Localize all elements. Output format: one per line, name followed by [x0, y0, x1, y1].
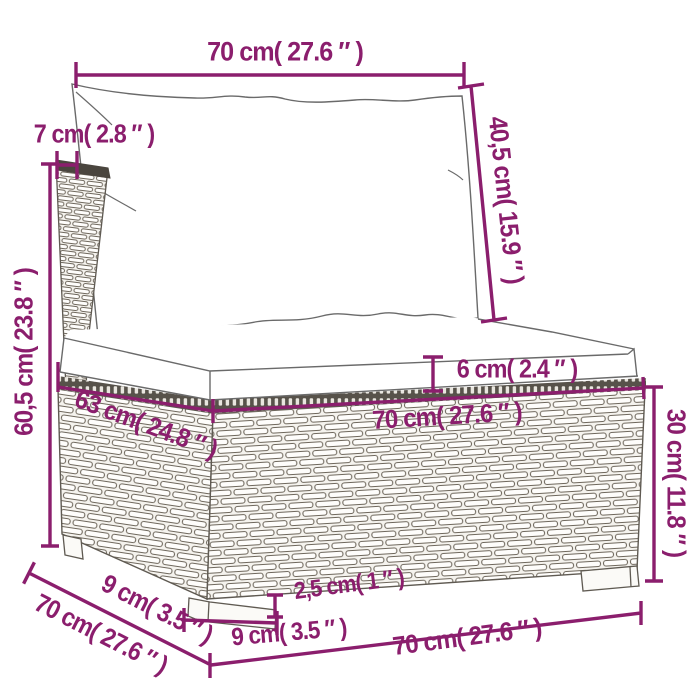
foot-left	[63, 535, 83, 559]
label-seat-cushion-thickness: 6 cm( 2.4 ″ )	[457, 354, 577, 385]
label-top-width: 70 cm( 27.6 ″ )	[207, 37, 363, 68]
label-base-height: 30 cm( 11.8 ″ )	[661, 409, 692, 557]
label-back-height: 60,5 cm( 23.8 ″ )	[9, 268, 40, 436]
label-back-thickness: 7 cm( 2.8 ″ )	[34, 119, 154, 150]
product-dimension-diagram: 70 cm( 27.6 ″ ) 7 cm( 2.8 ″ ) 60,5 cm( 2…	[0, 0, 700, 700]
dim-line-back-height	[41, 164, 59, 546]
